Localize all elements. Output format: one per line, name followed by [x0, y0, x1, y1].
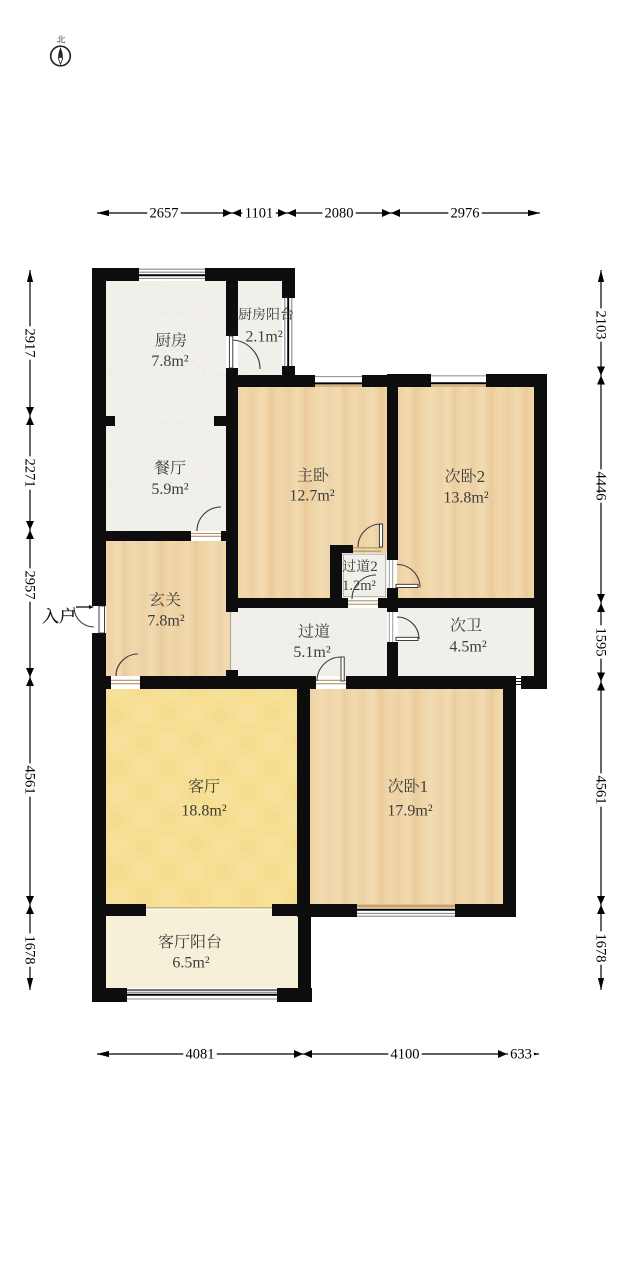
svg-text:2: 2	[477, 467, 486, 486]
svg-text:2957: 2957	[21, 571, 37, 600]
svg-text:12.7m²: 12.7m²	[289, 487, 334, 504]
svg-text:7.8m²: 7.8m²	[147, 612, 184, 629]
svg-text:5.1m²: 5.1m²	[293, 644, 330, 661]
svg-text:1595: 1595	[592, 628, 608, 657]
svg-text:2103: 2103	[592, 311, 608, 340]
svg-text:2271: 2271	[21, 459, 37, 488]
svg-text:7.8m²: 7.8m²	[151, 353, 188, 370]
svg-text:1101: 1101	[245, 206, 273, 222]
svg-text:1678: 1678	[592, 934, 608, 963]
svg-text:2.1m²: 2.1m²	[245, 328, 282, 345]
svg-text:13.8m²: 13.8m²	[443, 489, 488, 506]
svg-text:6.5m²: 6.5m²	[172, 954, 209, 971]
svg-text:633: 633	[510, 1047, 532, 1063]
svg-text:2080: 2080	[325, 206, 354, 222]
svg-text:4081: 4081	[186, 1047, 215, 1063]
svg-text:1.2m²: 1.2m²	[342, 578, 376, 594]
svg-text:2976: 2976	[451, 206, 480, 222]
svg-text:4100: 4100	[391, 1047, 420, 1063]
svg-text:1678: 1678	[21, 936, 37, 965]
svg-text:5.9m²: 5.9m²	[151, 481, 188, 498]
svg-text:2917: 2917	[21, 329, 37, 358]
svg-text:18.8m²: 18.8m²	[181, 802, 226, 819]
svg-text:4.5m²: 4.5m²	[449, 638, 486, 655]
svg-text:2657: 2657	[150, 206, 179, 222]
svg-text:17.9m²: 17.9m²	[387, 802, 432, 819]
svg-text:4561: 4561	[592, 776, 608, 805]
svg-text:1: 1	[420, 777, 429, 796]
svg-text:4561: 4561	[21, 766, 37, 795]
svg-text:4446: 4446	[592, 472, 608, 501]
svg-text:2: 2	[370, 559, 378, 575]
